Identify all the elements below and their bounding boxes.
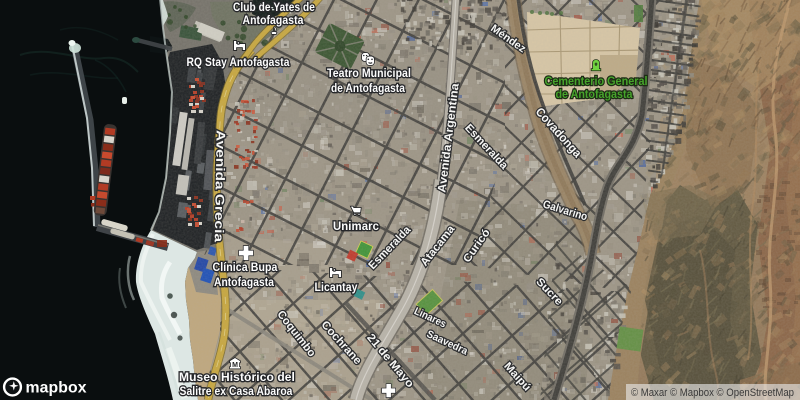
svg-text:Salitre ex Casa Abaroa: Salitre ex Casa Abaroa — [180, 384, 293, 398]
svg-text:Museo Histórico del: Museo Histórico del — [179, 370, 295, 384]
svg-text:de Antofagasta: de Antofagasta — [331, 81, 405, 95]
svg-text:Teatro Municipal: Teatro Municipal — [327, 66, 411, 80]
svg-text:RQ Stay Antofagasta: RQ Stay Antofagasta — [187, 55, 290, 69]
svg-text:M: M — [232, 362, 238, 369]
svg-text:mapbox: mapbox — [26, 379, 87, 396]
svg-text:Cementerio General: Cementerio General — [545, 74, 648, 88]
svg-text:Club de Yates de: Club de Yates de — [233, 0, 315, 14]
svg-text:de Antofagasta: de Antofagasta — [556, 87, 633, 101]
svg-text:Clínica Bupa: Clínica Bupa — [213, 260, 278, 274]
svg-text:Licantay: Licantay — [315, 280, 358, 294]
svg-text:Antofagasta: Antofagasta — [214, 275, 274, 289]
svg-text:Avenida Grecia: Avenida Grecia — [212, 130, 228, 244]
svg-text:Antofagasta: Antofagasta — [243, 13, 304, 27]
svg-text:© Maxar © Mapbox © OpenStreetM: © Maxar © Mapbox © OpenStreetMap — [631, 387, 794, 399]
svg-text:Unimarc: Unimarc — [333, 219, 379, 233]
